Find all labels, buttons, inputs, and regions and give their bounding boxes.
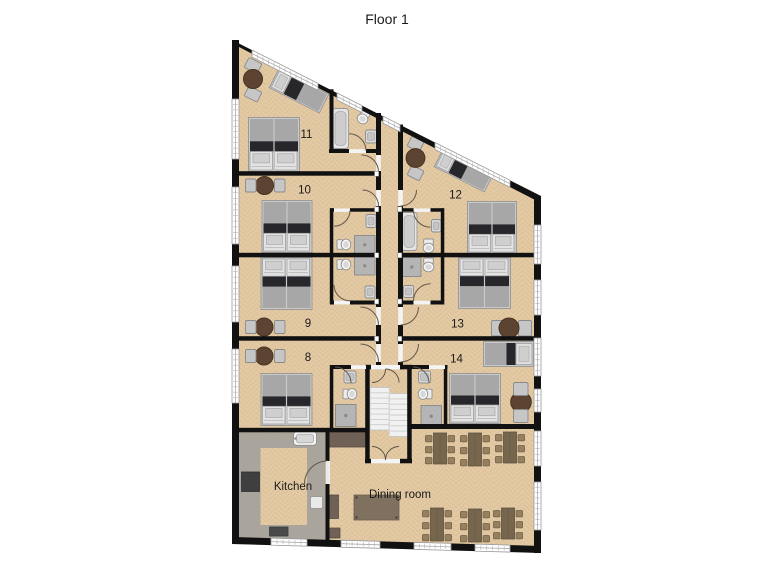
svg-text:9: 9 <box>305 318 311 330</box>
svg-text:13: 13 <box>451 319 464 331</box>
svg-text:11: 11 <box>301 129 313 141</box>
svg-text:Floor 1: Floor 1 <box>365 11 409 27</box>
svg-text:10: 10 <box>298 185 311 197</box>
svg-text:12: 12 <box>449 190 462 202</box>
svg-text:14: 14 <box>450 354 463 366</box>
svg-text:Dining room: Dining room <box>369 489 431 501</box>
svg-text:8: 8 <box>305 352 311 364</box>
svg-text:Kitchen: Kitchen <box>274 481 312 493</box>
